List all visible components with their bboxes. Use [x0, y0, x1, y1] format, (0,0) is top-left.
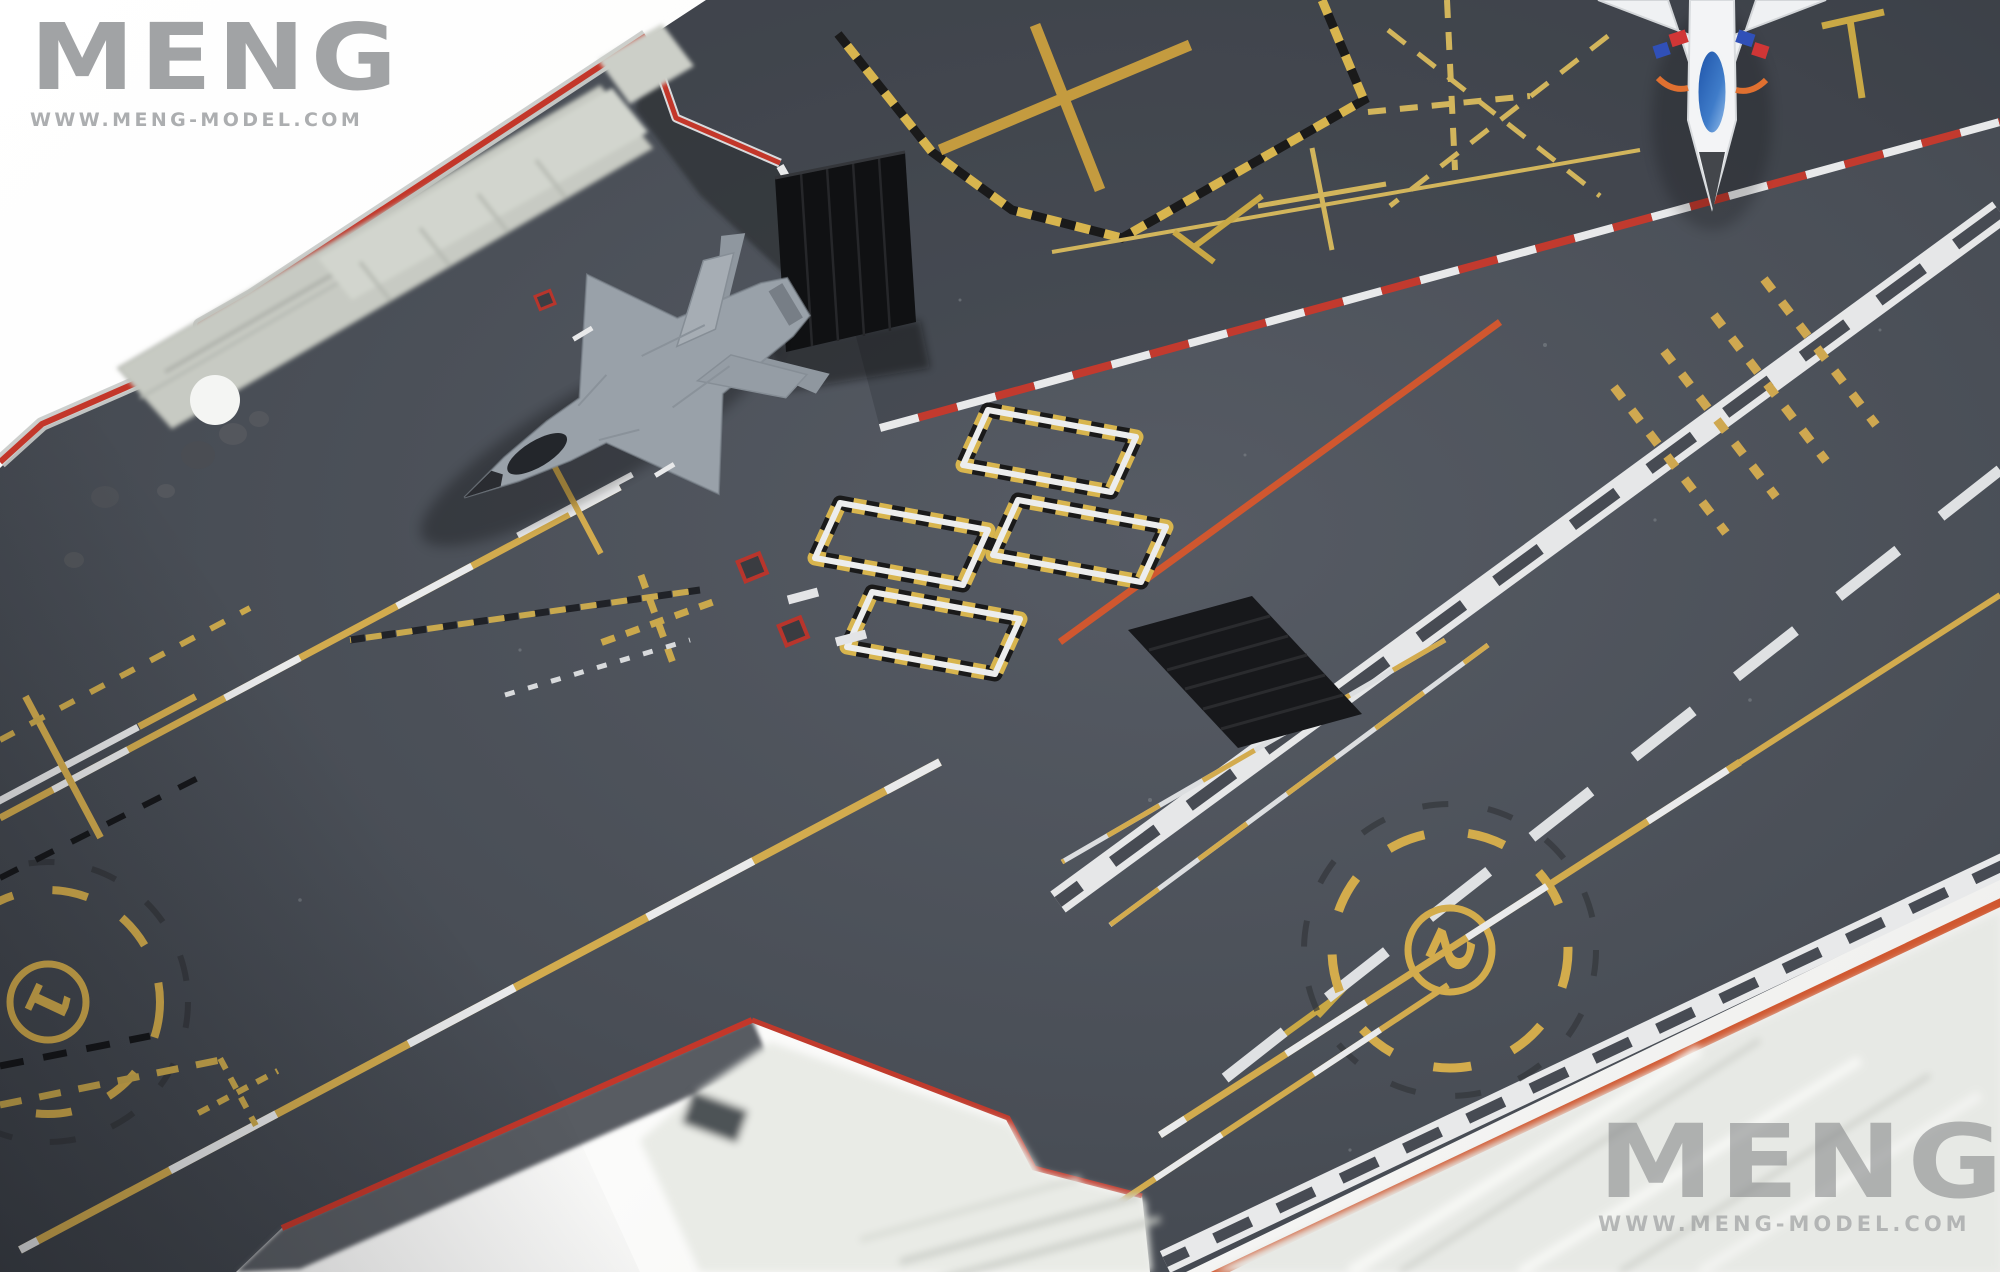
meng-watermark-logo-text: MENG: [1598, 1116, 2000, 1210]
carrier-model-photo: 2 1 MENG WWW.MENG-MODEL.COM MENG WWW.MEN…: [0, 0, 2000, 1272]
jbd-raised: [770, 152, 930, 392]
meng-logo-topleft: MENG WWW.MENG-MODEL.COM: [30, 16, 363, 131]
meng-website-url: WWW.MENG-MODEL.COM: [30, 109, 363, 131]
meng-watermark: MENG WWW.MENG-MODEL.COM: [1598, 1116, 1971, 1236]
meng-logo-text: MENG: [30, 16, 410, 101]
photo-scene-svg: 2 1: [0, 0, 2000, 1272]
